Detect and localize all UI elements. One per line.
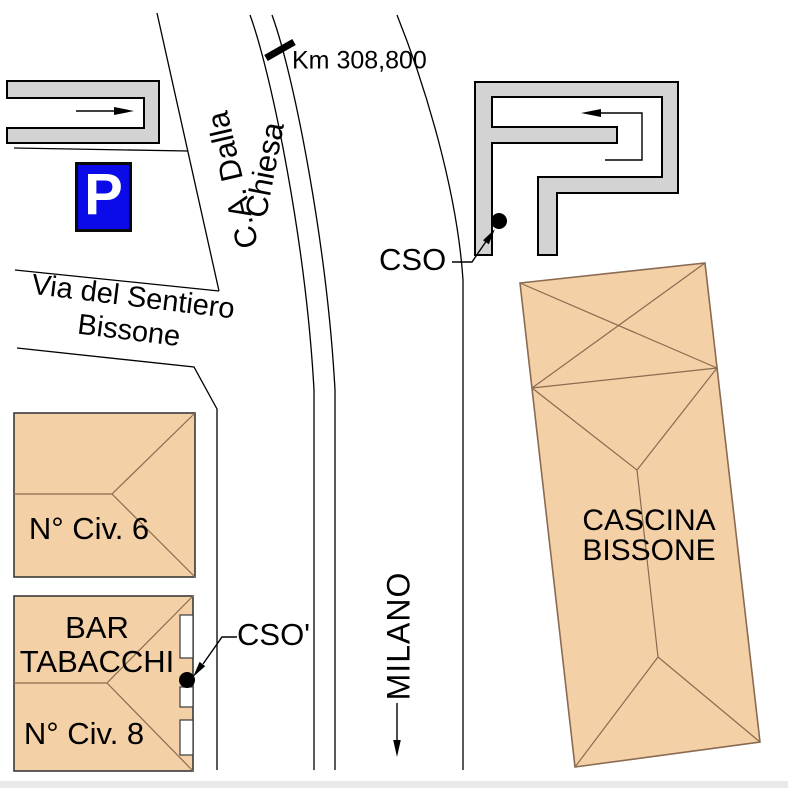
- parking-sign-letter: P: [84, 166, 123, 224]
- cso-marker-dot: [491, 213, 507, 229]
- cascina-label-line2: BISSONE: [582, 536, 715, 566]
- building-label-civ8: N° Civ. 8: [24, 716, 144, 752]
- building-entrance-notch-1: [180, 615, 193, 658]
- parking-area-edge-line: [14, 148, 188, 151]
- building-label-bar-line1: BAR: [20, 611, 174, 645]
- guardrail-structure-left: [7, 81, 159, 143]
- site-map: P Km 308,800 C.A. Dalla Chiesa Via del S…: [0, 0, 788, 788]
- building-label-cascina-bissone: CASCINA BISSONE: [582, 506, 715, 566]
- cso-prime-marker-dot: [179, 672, 195, 688]
- milano-arrow-head: [393, 740, 401, 757]
- cso-prime-leader-line: [203, 637, 237, 664]
- guardrail-left-arrow-head: [114, 107, 134, 115]
- building-entrance-notch-2: [180, 687, 193, 707]
- milano-direction-label: MILANO: [381, 572, 418, 701]
- page-bottom-strip: [0, 781, 788, 788]
- building-label-bar-line2: TABACCHI: [20, 645, 174, 679]
- building-label-civ6: N° Civ. 6: [29, 511, 149, 547]
- cascina-label-line1: CASCINA: [582, 506, 715, 536]
- cso-prime-label: CSO': [237, 617, 310, 653]
- km-marker-label: Km 308,800: [292, 47, 427, 76]
- chicane-path-arrow-head: [581, 109, 601, 117]
- km-marker-tick: [266, 42, 294, 58]
- cso-label: CSO: [379, 242, 446, 278]
- building-civ6: [14, 413, 195, 577]
- chicane-structure-right: [475, 82, 678, 255]
- building-entrance-notch-3: [180, 720, 193, 755]
- parking-sign: P: [75, 162, 132, 232]
- building-label-bar-tabacchi: BAR TABACCHI: [20, 611, 174, 679]
